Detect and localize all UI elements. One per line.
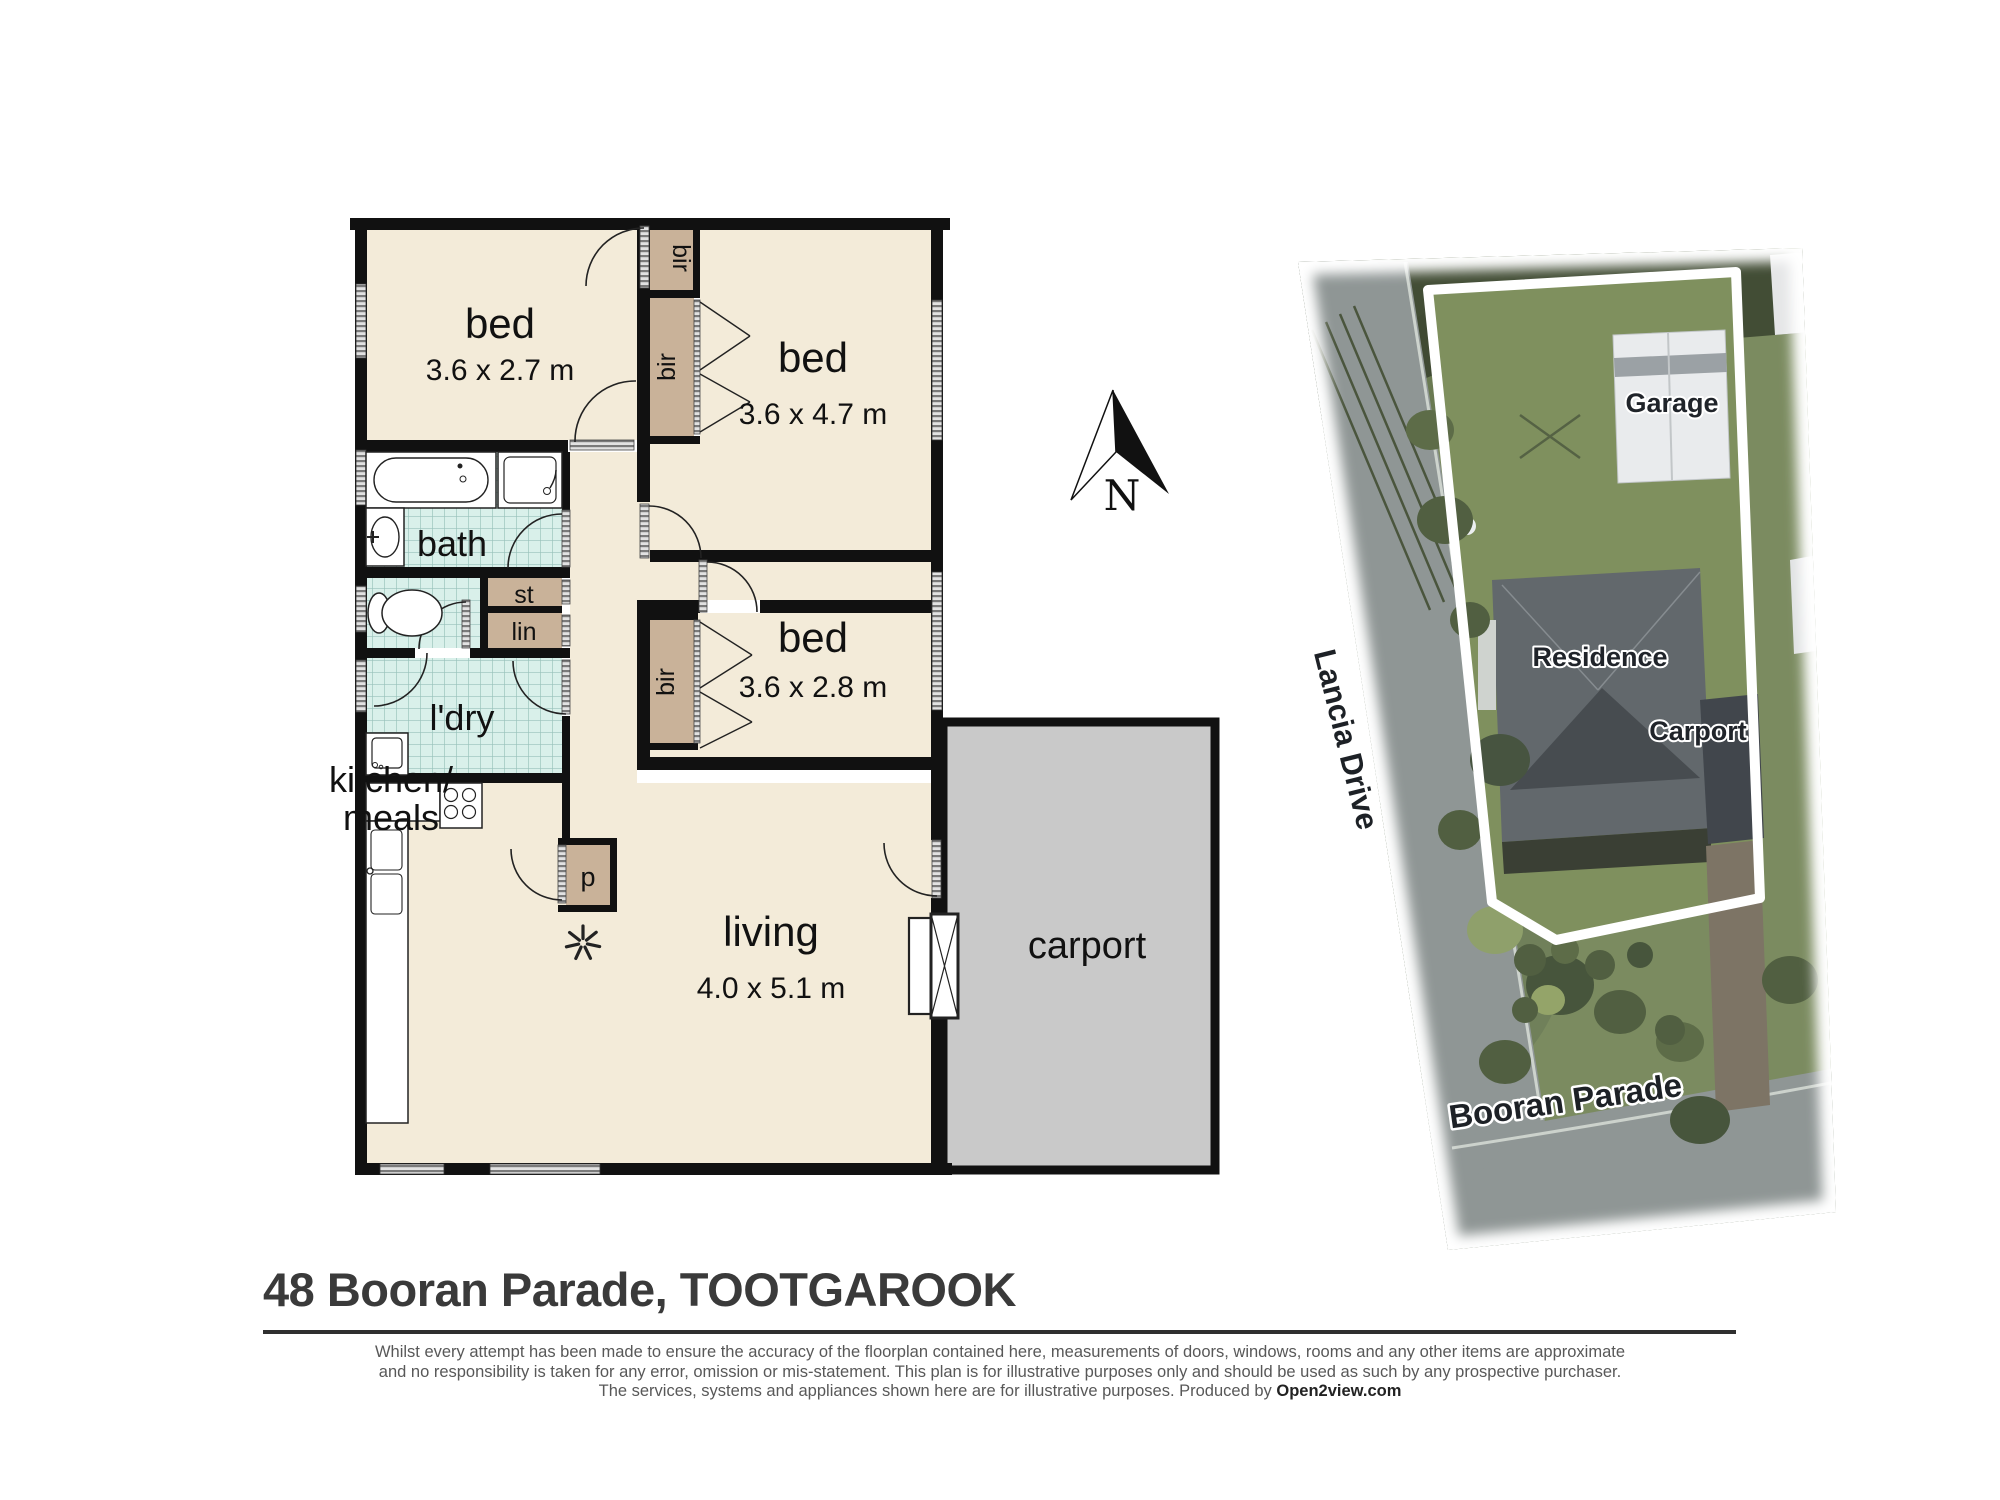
robe-3-label: bir xyxy=(652,668,680,696)
hallway-floor xyxy=(570,452,637,783)
page-title: 48 Booran Parade, TOOTGAROOK xyxy=(263,1262,1016,1317)
kitchen-label-line2: meals xyxy=(343,797,439,838)
disclaimer-line-1: Whilst every attempt has been made to en… xyxy=(0,1343,2000,1363)
bedroom-3-dims: 3.6 x 2.8 m xyxy=(739,671,887,704)
north-compass: N xyxy=(1071,390,1169,520)
robe-2-label: bir xyxy=(653,353,681,381)
disclaimer: Whilst every attempt has been made to en… xyxy=(0,1343,2000,1402)
floor-plan: bed 3.6 x 2.7 m bed 3.6 x 4.7 m bed 3.6 … xyxy=(329,218,1215,1175)
bedroom-2-label: bed xyxy=(778,334,848,381)
aerial-residence-label: Residence xyxy=(1532,642,1667,672)
window-bath xyxy=(356,450,366,505)
kitchen-label-line1: kitchen/ xyxy=(329,759,453,800)
title-rule xyxy=(263,1330,1736,1334)
disclaimer-line-2: and no responsibility is taken for any e… xyxy=(0,1363,2000,1383)
bedroom-2-floor xyxy=(700,230,931,550)
hall-nook-floor xyxy=(650,562,931,600)
kitchen-living-floor xyxy=(366,783,931,1163)
store-label: st xyxy=(514,581,534,609)
pantry-label: p xyxy=(580,862,595,892)
bathroom-label: bath xyxy=(417,523,487,564)
north-label: N xyxy=(1104,471,1141,520)
window-meals xyxy=(490,1164,600,1174)
window-wc xyxy=(356,586,366,632)
carport-label: carport xyxy=(1028,925,1147,967)
window-bed2 xyxy=(932,300,942,440)
bedroom-1-dims: 3.6 x 2.7 m xyxy=(426,354,574,387)
window-bed1 xyxy=(356,284,366,358)
laundry-label: l'dry xyxy=(430,697,495,738)
living-label: living xyxy=(723,908,819,955)
bedroom-1-label: bed xyxy=(465,300,535,347)
disclaimer-line-3: The services, systems and appliances sho… xyxy=(0,1382,2000,1402)
aerial-carport-label: Carport xyxy=(1649,716,1747,746)
producer-link: Open2view.com xyxy=(1276,1382,1401,1400)
living-dims: 4.0 x 5.1 m xyxy=(697,972,845,1005)
sliding-door-icon xyxy=(909,918,931,1014)
aerial-garage-label: Garage xyxy=(1625,388,1718,418)
aerial-photo: Garage Residence Carport Lancia Drive Bo… xyxy=(1290,240,1846,1260)
floorplan-page: bed 3.6 x 2.7 m bed 3.6 x 4.7 m bed 3.6 … xyxy=(0,0,2000,1500)
bedroom-3-label: bed xyxy=(778,614,848,661)
robe-1-label: bir xyxy=(667,244,695,272)
bedroom-2-dims: 3.6 x 4.7 m xyxy=(739,398,887,431)
window-kitchen xyxy=(380,1164,444,1174)
linen-label: lin xyxy=(511,618,536,646)
window-laundry xyxy=(356,660,366,712)
window-bed3 xyxy=(932,572,942,710)
